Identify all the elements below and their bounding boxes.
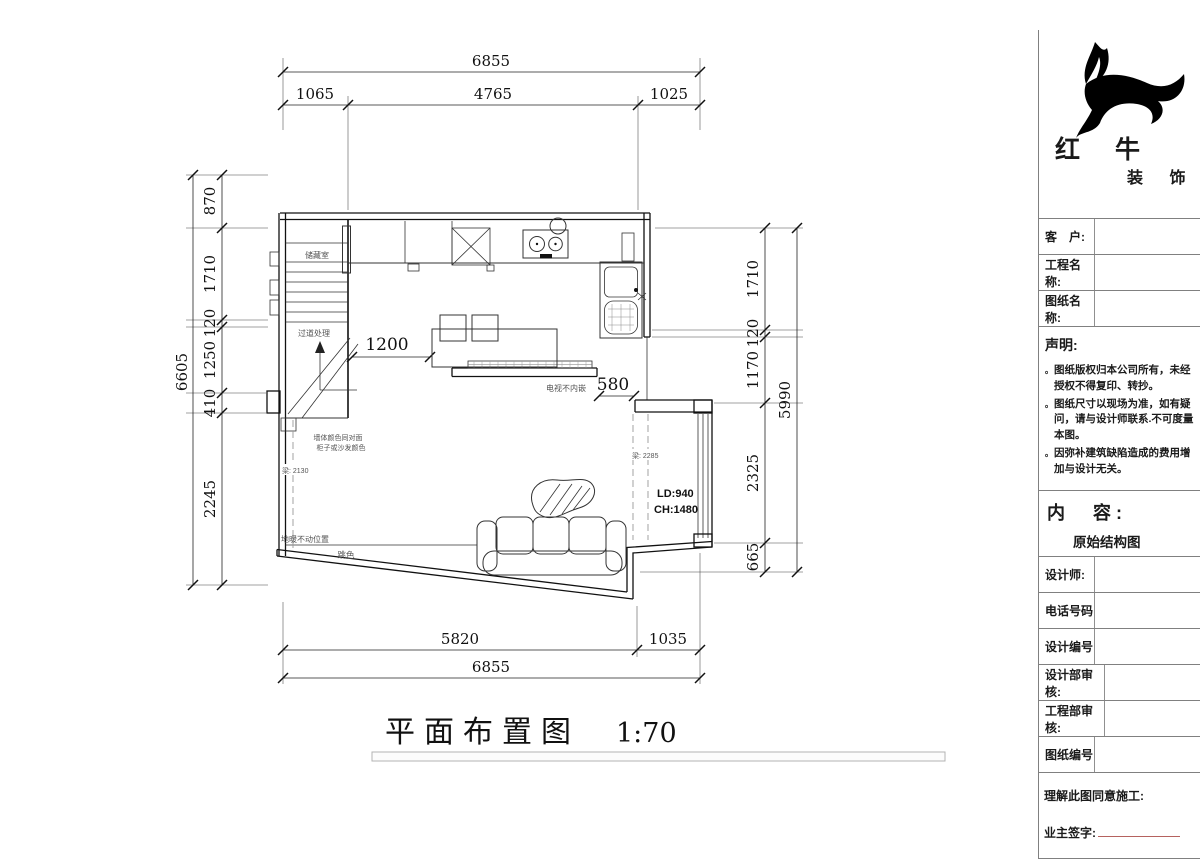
brand-name-sub: 装 饰: [1127, 164, 1196, 188]
owner-signature-text: 业主签字:: [1044, 826, 1096, 840]
field-row-phone: 电话号码: [1039, 592, 1200, 628]
dim-bottom-seg1: 5820: [441, 630, 479, 648]
content-value: 原始结构图: [1073, 531, 1200, 551]
beam-right-label: 梁: 2285: [632, 451, 659, 460]
kitchen-sink: [600, 262, 646, 338]
title-block: 红 牛 装 饰 客 户: 工程名称: 图纸名称: 声明: 。 图纸版权归本公司所…: [1038, 30, 1200, 859]
wall-color-note-2: 柜子或沙发颜色: [317, 443, 366, 452]
statement-item-text: 图纸尺寸以现场为准，如有疑问，请与设计师联系.不可度量本图。: [1054, 397, 1196, 444]
content-section: 内 容: 原始结构图: [1039, 490, 1200, 556]
dim-left-seg2: 1710: [201, 255, 219, 293]
kitchen-counter: [348, 218, 646, 338]
dim-right-seg1: 1710: [744, 260, 762, 298]
dim-left-seg4: 1250: [201, 341, 219, 379]
beam-left-label: 梁: 2130: [282, 466, 309, 475]
dim-walkway: 1200: [365, 335, 408, 355]
field-label-phone: 电话号码: [1039, 593, 1095, 628]
dim-top-seg3: 1025: [650, 85, 688, 103]
gas-stove: [523, 230, 568, 259]
bullet-dot: 。: [1045, 446, 1054, 478]
dim-right-seg4: 2325: [744, 454, 762, 492]
dim-top-seg2: 4765: [474, 85, 512, 103]
water-heater-box: [622, 233, 634, 261]
corridor-note-label: 过道处理: [298, 328, 330, 338]
field-label-project-name: 工程名称:: [1039, 255, 1095, 290]
statement-section: 声明: 。 图纸版权归本公司所有，未经授权不得复印、转抄。 。 图纸尺寸以现场为…: [1039, 326, 1200, 490]
wall-color-note-1: 墙体颜色同对面: [314, 433, 363, 442]
statement-item-text: 因弥补建筑缺陷造成的费用增加与设计无关。: [1054, 446, 1196, 478]
sofa: [477, 517, 626, 575]
field-row-drawing-name: 图纸名称:: [1039, 290, 1200, 326]
dim-left-seg5: 410: [201, 389, 219, 418]
field-label-engineering-review: 工程部审核:: [1039, 701, 1105, 736]
window: LD:940 CH:1480: [654, 400, 712, 547]
dim-right-seg2: 120: [744, 319, 762, 348]
dim-left-seg1: 870: [201, 187, 219, 216]
bullet-dot: 。: [1045, 397, 1054, 444]
dim-opening: 580: [597, 375, 629, 395]
window-ch-label: CH:1480: [654, 504, 698, 516]
field-label-client: 客 户:: [1039, 219, 1095, 254]
statement-heading: 声明:: [1045, 335, 1196, 355]
field-label-design-no: 设计编号: [1039, 629, 1095, 664]
dimension-labels: 6855 1065 4765 1025 5820 1035 6855 6605 …: [173, 52, 794, 676]
field-row-designer: 设计师:: [1039, 556, 1200, 592]
dimension-ticks: [188, 67, 802, 683]
floor-note-label: 地暖不动位置: [281, 534, 329, 544]
signature-line: [1098, 824, 1180, 837]
title-underline-bar: [372, 752, 945, 761]
beams-and-notes: 梁: 2130 梁: 2285 墙体颜色同对面 柜子或沙发颜色 地暖不动位置 跳…: [280, 414, 668, 560]
statement-item: 。 图纸尺寸以现场为准，如有疑问，请与设计师联系.不可度量本图。: [1045, 397, 1196, 444]
field-row-design-no: 设计编号: [1039, 628, 1200, 664]
bullet-dot: 。: [1045, 363, 1054, 395]
footer-section: 理解此图同意施工: 业主签字:: [1039, 772, 1200, 858]
field-label-drawing-no: 图纸编号: [1039, 737, 1095, 772]
dining-table: [432, 315, 557, 367]
brand-name-main: 红 牛: [1055, 130, 1154, 166]
owner-signature-label: 业主签字:: [1044, 824, 1200, 841]
dim-right-overall: 5990: [776, 381, 794, 419]
field-row-drawing-no: 图纸编号: [1039, 736, 1200, 772]
dimension-lines: [193, 72, 797, 678]
statement-item: 。 图纸版权归本公司所有，未经授权不得复印、转抄。: [1045, 363, 1196, 395]
bull-logo-icon: [1061, 38, 1191, 143]
dim-right-seg3: 1170: [744, 351, 762, 389]
dim-left-seg3: 120: [201, 309, 219, 338]
field-row-project-name: 工程名称:: [1039, 254, 1200, 290]
agreement-text: 理解此图同意施工:: [1044, 787, 1200, 804]
tile-color-note-label: 跳色: [337, 550, 355, 560]
field-label-designer: 设计师:: [1039, 557, 1095, 592]
coffee-table: [532, 479, 595, 517]
statement-item-text: 图纸版权归本公司所有，未经授权不得复印、转抄。: [1054, 363, 1196, 395]
content-label: 内 容:: [1047, 499, 1200, 525]
dim-left-seg6: 2245: [201, 480, 219, 518]
field-row-engineering-review: 工程部审核:: [1039, 700, 1200, 736]
field-row-client: 客 户:: [1039, 218, 1200, 254]
sheet-title: 平面布置图 1:70: [372, 716, 945, 761]
storage-room-label: 储藏室: [305, 250, 329, 260]
company-logo-cell: 红 牛 装 饰: [1039, 30, 1200, 218]
dim-bottom-seg2: 1035: [649, 630, 687, 648]
window-ld-label: LD:940: [657, 488, 694, 500]
statement-item: 。 因弥补建筑缺陷造成的费用增加与设计无关。: [1045, 446, 1196, 478]
cad-sheet: 6855 1065 4765 1025 5820 1035 6855 6605 …: [0, 0, 1200, 865]
flue-circle: [550, 218, 566, 234]
staircase: 储藏室 过道处理: [281, 226, 358, 431]
field-label-drawing-name: 图纸名称:: [1039, 291, 1095, 326]
tv-note-label: 电视不内嵌: [546, 383, 586, 393]
plan-scale-text: 1:70: [616, 718, 677, 749]
dim-bottom-overall: 6855: [472, 658, 510, 676]
dim-top-overall: 6855: [472, 52, 510, 70]
field-label-design-review: 设计部审核:: [1039, 665, 1105, 700]
dim-top-seg1: 1065: [296, 85, 334, 103]
floor-plan-svg: 6855 1065 4765 1025 5820 1035 6855 6605 …: [0, 0, 1030, 865]
dim-left-overall: 6605: [173, 353, 191, 391]
plan-title-text: 平面布置图: [385, 716, 580, 749]
dim-right-seg5: 665: [744, 543, 762, 572]
field-row-design-review: 设计部审核:: [1039, 664, 1200, 700]
